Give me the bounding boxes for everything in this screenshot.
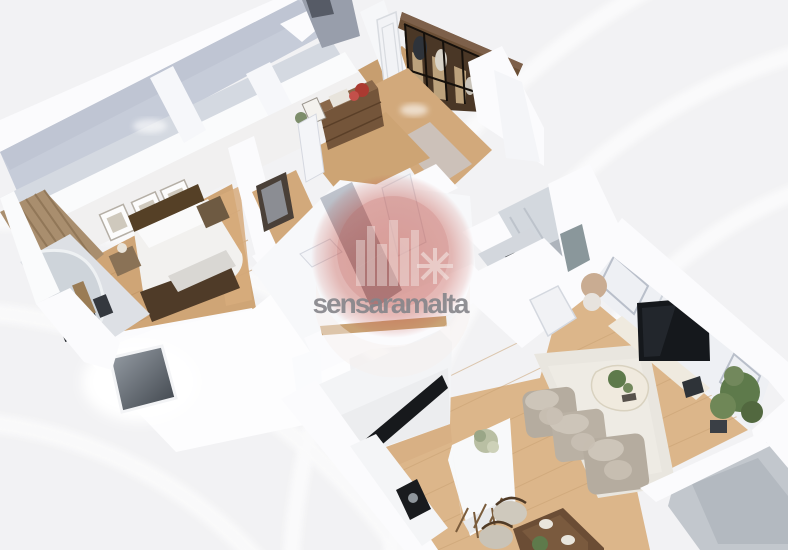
- svg-text:sensaramalta: sensaramalta: [312, 288, 469, 319]
